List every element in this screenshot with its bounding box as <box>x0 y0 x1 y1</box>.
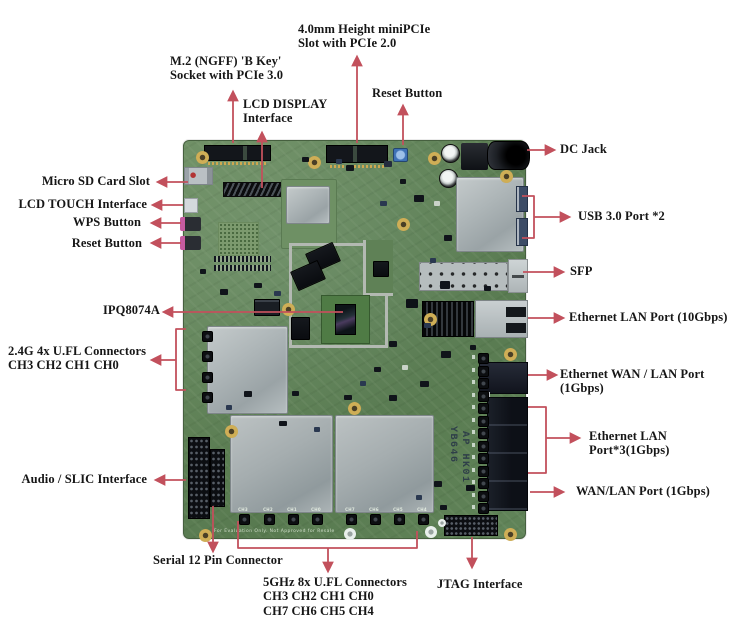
pcb-board: YB646 AP HK01 For Evaluation Only. Not A… <box>183 140 526 539</box>
lcd-display-header <box>223 182 282 197</box>
smd-component <box>226 405 232 410</box>
ufl-label-silk <box>472 443 475 447</box>
label-wps: WPS Button <box>73 215 141 229</box>
ufl-connector <box>478 416 489 427</box>
reset-button-side-onboard <box>180 236 201 250</box>
smd-component <box>416 495 422 500</box>
soic-chip <box>254 299 280 316</box>
screw-hole <box>225 425 238 438</box>
ufl-connector <box>202 351 213 362</box>
label-reset-top: Reset Button <box>372 86 442 100</box>
label-reset-left: Reset Button <box>72 236 142 250</box>
ufl-connector <box>264 514 275 525</box>
ufl-connector <box>418 514 429 525</box>
ufl-connector <box>478 466 489 477</box>
ufl-connector <box>288 514 299 525</box>
2g4-radio-shield <box>207 326 288 414</box>
micro-sd-slot <box>184 167 213 185</box>
label-wan-lan: WAN/LAN Port (1Gbps) <box>576 484 710 498</box>
label-usb3: USB 3.0 Port *2 <box>578 209 665 223</box>
ufl-label-silk <box>472 405 475 409</box>
screw-hole <box>504 348 517 361</box>
audio-slic-header <box>188 437 210 519</box>
sfp-port-face <box>508 259 528 293</box>
screw-hole <box>282 303 295 316</box>
smd-component <box>380 201 387 206</box>
ufl-connector <box>478 478 489 489</box>
smd-component <box>440 505 447 510</box>
label-lcd-display: LCD DISPLAY Interface <box>243 97 327 126</box>
ufl-connector <box>478 391 489 402</box>
ufl-label-silk <box>472 468 475 472</box>
minipcie-gold-contacts <box>330 165 385 168</box>
smd-component <box>434 481 442 487</box>
ufl-label-silk <box>472 493 475 497</box>
dc-jack-body <box>461 143 488 170</box>
ch-label: CH0 <box>306 507 326 512</box>
smd-component <box>406 299 418 308</box>
smd-component <box>430 258 436 263</box>
smd-component <box>336 159 342 164</box>
bga-pad-grid <box>218 222 259 256</box>
label-audio-slic: Audio / SLIC Interface <box>22 472 147 486</box>
label-eth-wan-lan: Ethernet WAN / LAN Port (1Gbps) <box>560 367 750 396</box>
label-eth-lan3: Ethernet LAN Port*3(1Gbps) <box>589 429 750 458</box>
reset-button-onboard <box>393 148 408 162</box>
wps-button-onboard <box>180 217 201 231</box>
resistor-array-row <box>214 256 271 262</box>
plated-hole <box>344 528 356 540</box>
ch-label: CH1 <box>282 507 302 512</box>
ufl-connector <box>478 491 489 502</box>
ufl-connector <box>478 453 489 464</box>
smd-component <box>400 179 406 184</box>
smd-component <box>344 395 352 400</box>
ufl-connector <box>202 392 213 403</box>
smd-component <box>441 351 451 358</box>
ufl-label-silk <box>472 355 475 359</box>
usb3-port <box>516 186 528 212</box>
ufl-label-silk <box>472 430 475 434</box>
ufl-connector <box>478 366 489 377</box>
ufl-connector <box>478 378 489 389</box>
ch-label: CH3 <box>233 507 253 512</box>
10g-port-opening <box>506 307 526 317</box>
smd-component <box>434 201 440 206</box>
smd-component <box>279 421 287 426</box>
ufl-label-silk <box>472 368 475 372</box>
screw-hole <box>397 218 410 231</box>
smd-component <box>389 395 397 401</box>
plated-hole <box>438 519 446 527</box>
small-ic <box>373 261 389 277</box>
smd-component <box>384 161 392 167</box>
resistor-array-row <box>214 265 271 271</box>
ufl-connector <box>239 514 250 525</box>
ch-label: CH4 <box>412 507 432 512</box>
ch-label: CH5 <box>388 507 408 512</box>
ch-label: CH7 <box>340 507 360 512</box>
screw-hole <box>348 402 361 415</box>
smd-component <box>374 367 381 372</box>
smd-component <box>484 286 491 291</box>
smd-component <box>254 283 262 288</box>
smd-component <box>420 381 429 387</box>
label-minipcie: 4.0mm Height miniPCIe Slot with PCIe 2.0 <box>298 22 430 51</box>
screw-hole <box>500 170 513 183</box>
ufl-connector <box>478 428 489 439</box>
label-dc-jack: DC Jack <box>560 142 607 156</box>
jtag-header <box>444 515 498 536</box>
screw-hole <box>428 152 441 165</box>
dc-jack-barrel <box>487 141 530 170</box>
label-sfp: SFP <box>570 264 593 278</box>
label-m2: M.2 (NGFF) 'B Key' Socket with PCIe 3.0 <box>170 54 283 83</box>
smd-component <box>444 235 452 241</box>
smd-component <box>402 365 408 370</box>
ufl-label-silk <box>472 480 475 484</box>
ufl-connector <box>478 403 489 414</box>
ufl-label-silk <box>472 393 475 397</box>
module-emi-shield <box>286 186 330 224</box>
flash-chip <box>291 317 310 340</box>
smd-component <box>440 281 450 289</box>
ufl-connector <box>478 503 489 514</box>
smd-component <box>389 341 397 347</box>
ufl-connector <box>346 514 357 525</box>
smd-component <box>314 427 320 432</box>
label-serial-12pin: Serial 12 Pin Connector <box>153 553 283 567</box>
screw-hole <box>196 151 209 164</box>
smd-component <box>470 345 476 350</box>
diagram-canvas: YB646 AP HK01 For Evaluation Only. Not A… <box>0 0 750 631</box>
ch-label: CH6 <box>364 507 384 512</box>
label-ufl-5g: 5GHz 8x U.FL Connectors CH3 CH2 CH1 CH0 … <box>263 575 407 618</box>
ufl-connector <box>370 514 381 525</box>
smd-component <box>244 391 252 397</box>
label-micro-sd: Micro SD Card Slot <box>42 174 150 188</box>
ufl-connector <box>478 441 489 452</box>
ufl-label-silk <box>472 418 475 422</box>
usb3-port <box>516 218 528 246</box>
plated-hole <box>425 526 437 538</box>
smd-component <box>424 323 431 328</box>
screw-hole <box>199 529 212 542</box>
board-model-text: YB646 <box>447 426 458 464</box>
ufl-connector <box>312 514 323 525</box>
smd-component <box>292 391 299 396</box>
ufl-connector <box>202 331 213 342</box>
ipq8074a-die <box>335 304 356 335</box>
board-model-text: AP HK01 <box>459 431 470 484</box>
smd-component <box>466 485 475 491</box>
ufl-label-silk <box>472 455 475 459</box>
sfp-cage <box>419 262 508 291</box>
m2-slot <box>204 145 271 161</box>
label-jtag: JTAG Interface <box>437 577 523 591</box>
smd-component <box>200 269 206 274</box>
screw-hole <box>504 528 517 541</box>
ufl-connector <box>478 353 489 364</box>
lan-port-block <box>487 397 528 511</box>
capacitor <box>441 144 460 163</box>
silkscreen-note: For Evaluation Only. Not Approved for Re… <box>214 529 335 534</box>
ufl-label-silk <box>472 505 475 509</box>
label-lcd-touch: LCD TOUCH Interface <box>18 197 147 211</box>
label-ipq8074a: IPQ8074A <box>103 303 160 317</box>
smd-component <box>274 291 281 296</box>
smd-component <box>346 165 354 171</box>
ch-label: CH2 <box>258 507 278 512</box>
serial-12pin-header <box>210 449 225 507</box>
ufl-connector <box>394 514 405 525</box>
bracket-eth-lan3 <box>528 407 546 473</box>
smd-component <box>302 157 309 162</box>
m2-gold-contacts <box>208 162 266 165</box>
usb3-shield-box <box>456 177 524 252</box>
smd-component <box>360 381 366 386</box>
smd-component <box>220 289 228 295</box>
10g-port-opening <box>506 323 526 333</box>
label-eth-10g: Ethernet LAN Port (10Gbps) <box>569 310 728 324</box>
screw-hole <box>308 156 321 169</box>
ufl-connector <box>202 372 213 383</box>
smd-component <box>414 195 424 202</box>
ufl-label-silk <box>472 380 475 384</box>
lcd-touch-connector <box>184 198 198 213</box>
label-ufl-24g: 2.4G 4x U.FL Connectors CH3 CH2 CH1 CH0 <box>8 344 146 373</box>
